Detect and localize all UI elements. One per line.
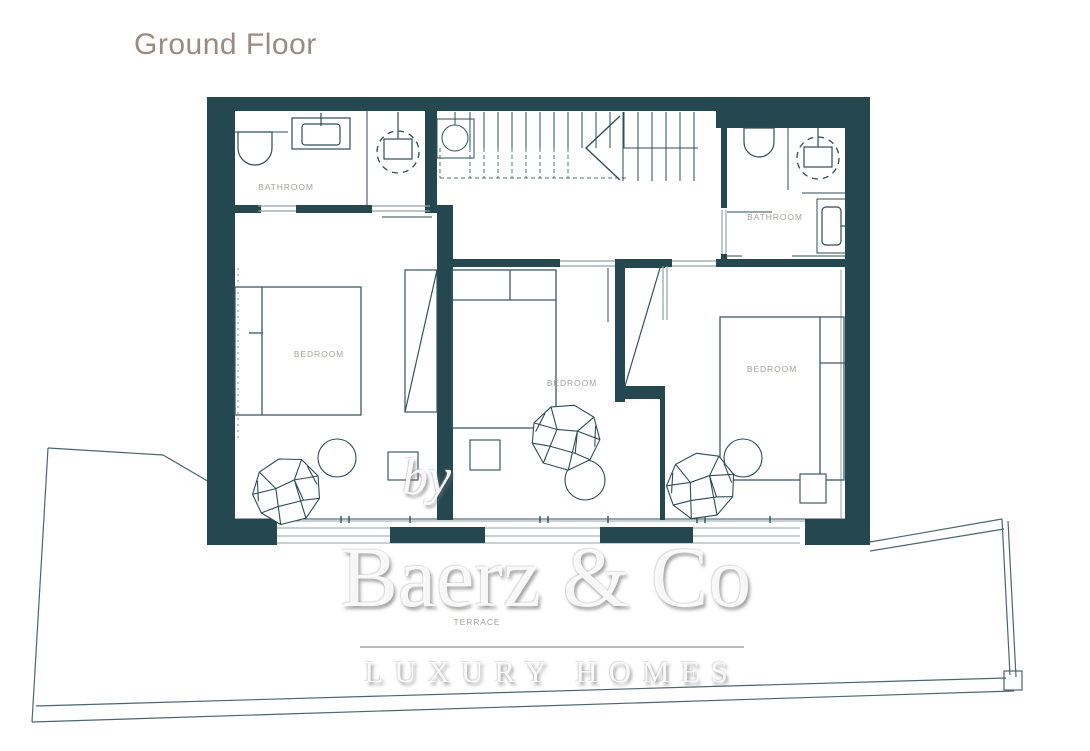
shower-icon bbox=[377, 112, 419, 173]
shower-icon bbox=[797, 128, 839, 179]
watermark-tagline: LUXURY HOMES bbox=[330, 654, 762, 690]
room-label-bedroom-middle: BEDROOM bbox=[547, 378, 597, 388]
vanity-sink-icon bbox=[817, 199, 849, 253]
watermark-brand: Baerz & Co bbox=[330, 532, 762, 622]
staircase bbox=[437, 112, 698, 181]
floor-plan-page: Ground Floor bbox=[0, 0, 1090, 751]
round-table bbox=[318, 439, 356, 477]
bed-middle bbox=[452, 270, 556, 428]
closet-left bbox=[405, 270, 437, 412]
room-label-bedroom-right: BEDROOM bbox=[747, 364, 797, 374]
furniture bbox=[246, 396, 826, 529]
bed-right bbox=[720, 317, 845, 480]
closet-middle bbox=[625, 268, 660, 386]
sink-icon bbox=[292, 113, 350, 149]
toilet-icon bbox=[233, 132, 288, 165]
toilet-icon bbox=[744, 128, 774, 157]
floor-plan-drawing: BATHROOM BATHROOM BEDROOM BEDROOM BEDROO… bbox=[0, 0, 1090, 751]
room-label-bathroom-left: BATHROOM bbox=[258, 182, 314, 192]
side-table bbox=[800, 474, 826, 503]
side-table bbox=[470, 440, 500, 470]
window-ticks bbox=[235, 516, 845, 523]
watermark-divider bbox=[360, 646, 744, 648]
room-label-bathroom-right: BATHROOM bbox=[747, 212, 803, 222]
watermark-by: by bbox=[402, 448, 451, 507]
bathroom-right bbox=[727, 128, 849, 256]
room-label-bedroom-left: BEDROOM bbox=[294, 349, 344, 359]
